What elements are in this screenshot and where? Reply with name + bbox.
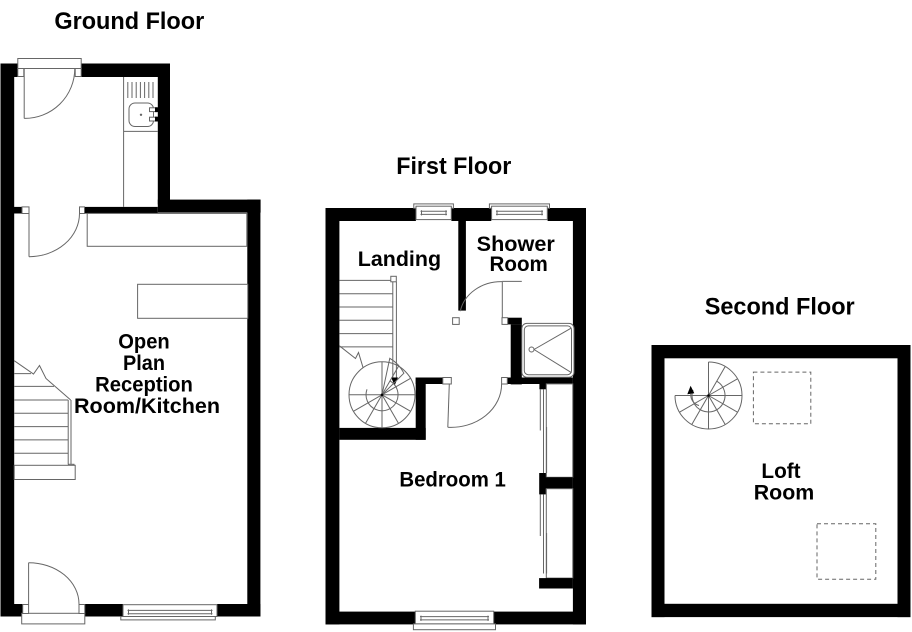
svg-text:Second Floor: Second Floor (705, 293, 855, 320)
svg-text:Bedroom 1: Bedroom 1 (399, 467, 506, 491)
svg-text:First Floor: First Floor (396, 153, 512, 180)
svg-text:Loft Room: Loft Room (754, 459, 815, 504)
svg-text:Landing: Landing (358, 247, 441, 271)
svg-text:Ground Floor: Ground Floor (54, 8, 204, 35)
